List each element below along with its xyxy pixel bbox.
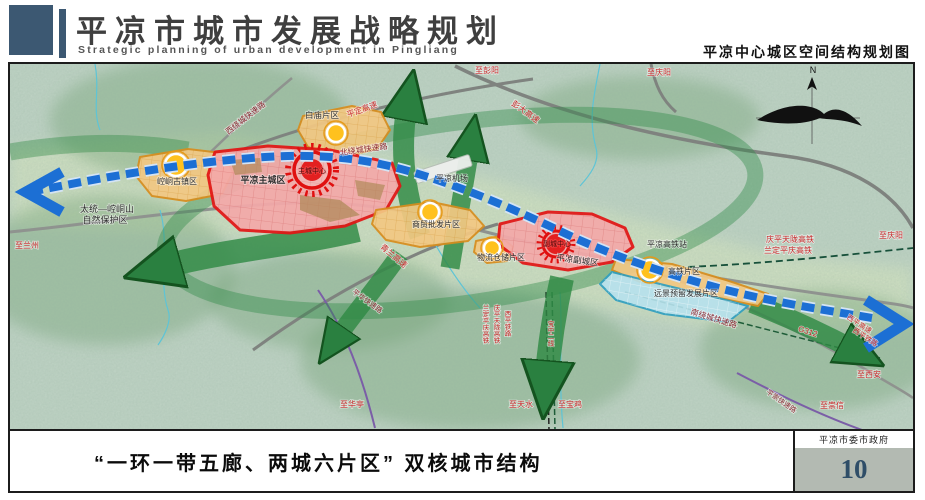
map-label: 西平铁路 [505, 310, 512, 338]
page-subtitle-english: Strategic planning of urban development … [78, 44, 459, 56]
page-number: 10 [795, 448, 913, 491]
page-number-box: 平凉市委市政府 10 [793, 431, 913, 491]
map-label: 至庆阳 [647, 67, 671, 77]
corridor-northwest-band [10, 143, 188, 152]
planning-map: N 至兰州太统—崆峒山自然保护区西绕城快速路平定高速白庙片区北绕城快速路彭大高速… [10, 64, 913, 431]
district-dot [324, 121, 348, 145]
map-label: 至庆阳 [879, 230, 903, 240]
map-label: 商贸批发片区 [412, 219, 460, 229]
map-title: 平凉中心城区空间结构规划图 [703, 42, 911, 62]
content-frame: N 至兰州太统—崆峒山自然保护区西绕城快速路平定高速白庙片区北绕城快速路彭大高速… [8, 62, 915, 493]
map-label: 至宝鸡 [558, 399, 582, 409]
map-label: 至西安 [857, 369, 881, 379]
map-label: 主城中心 [298, 166, 326, 175]
map-label: 物流仓储片区 [477, 252, 525, 262]
map-label: 至华亭 [340, 399, 364, 409]
map-label: 庆平天陇高铁 [766, 234, 814, 244]
map-label: 兰定平庆高铁 [483, 303, 490, 345]
map-label: 兰定平庆高铁 [764, 245, 812, 255]
map-label: 平凉高铁站 [647, 239, 687, 249]
caption-bar: “一环一带五廊、两城六片区” 双核城市结构 [10, 431, 793, 491]
map-label: 庆平天陇高铁 [494, 303, 501, 345]
map-label: 至崇信 [820, 400, 844, 410]
compass-north-label: N [810, 65, 817, 75]
map-label: 至兰州 [15, 240, 39, 250]
map-label: 崆峒古镇区 [157, 176, 197, 186]
map-label: 至天水 [509, 399, 533, 409]
map-label: 远景预留发展片区 [654, 288, 718, 298]
map-label: 高铁片区 [668, 266, 700, 276]
header-logo-square [9, 5, 53, 55]
map-label: 副城中心 [543, 239, 571, 248]
map-label: 平凉机场 [436, 173, 468, 183]
map-label: 宝中二线 [548, 319, 555, 348]
map-caption: “一环一带五廊、两城六片区” 双核城市结构 [10, 447, 543, 476]
map-label: 自然保护区 [82, 214, 127, 225]
planning-poster-page: 平凉市城市发展战略规划 Strategic planning of urban … [0, 0, 925, 500]
agency-name: 平凉市委市政府 [795, 431, 913, 448]
header-accent-bar [59, 9, 66, 58]
map-label: 平凉主城区 [240, 174, 285, 185]
map-label: 白庙片区 [305, 110, 340, 120]
map-label: 至彭阳 [475, 65, 499, 75]
map-label: 太统—崆峒山 [80, 203, 134, 214]
